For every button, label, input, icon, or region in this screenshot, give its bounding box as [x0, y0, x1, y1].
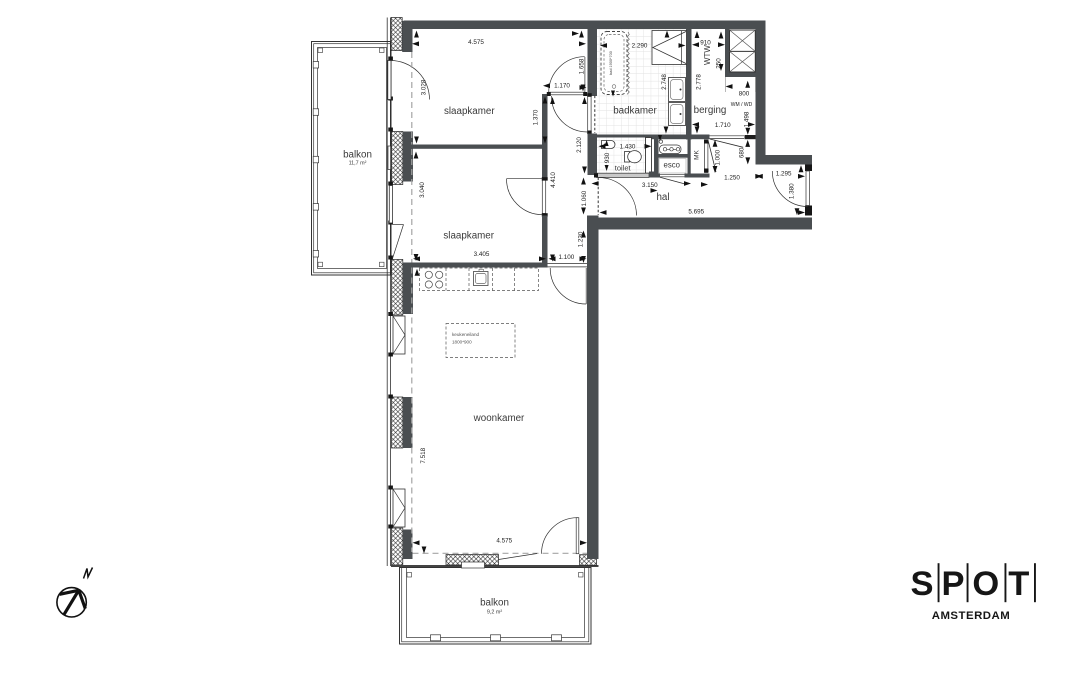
svg-text:hal: hal — [656, 192, 669, 203]
svg-text:WTW: WTW — [703, 45, 712, 65]
svg-text:berging: berging — [694, 105, 727, 116]
svg-text:5.695: 5.695 — [688, 209, 704, 216]
svg-text:9,2 m²: 9,2 m² — [487, 610, 502, 616]
svg-text:7.518: 7.518 — [420, 447, 427, 463]
svg-text:1.295: 1.295 — [776, 171, 792, 178]
svg-text:WM / WD: WM / WD — [731, 102, 753, 108]
svg-text:3.405: 3.405 — [474, 251, 490, 258]
svg-text:slaapkamer: slaapkamer — [443, 231, 494, 242]
svg-text:1800*900: 1800*900 — [452, 340, 472, 345]
svg-text:badkamer: badkamer — [613, 106, 657, 117]
svg-text:1.060: 1.060 — [581, 190, 588, 206]
svg-text:680: 680 — [739, 147, 746, 158]
svg-text:2.778: 2.778 — [696, 74, 703, 90]
svg-text:balkon: balkon — [343, 149, 372, 160]
svg-text:1.000: 1.000 — [714, 149, 721, 165]
svg-text:4.575: 4.575 — [496, 538, 512, 545]
svg-text:1.380: 1.380 — [789, 183, 796, 199]
svg-text:1.658: 1.658 — [579, 58, 586, 74]
svg-text:2.290: 2.290 — [632, 42, 648, 49]
svg-text:esco: esco — [664, 161, 681, 170]
svg-text:1.710: 1.710 — [715, 122, 731, 129]
svg-text:1.100: 1.100 — [559, 254, 575, 261]
svg-text:bad 1900*700: bad 1900*700 — [609, 51, 613, 75]
svg-text:1.250: 1.250 — [724, 174, 740, 181]
svg-text:3.028: 3.028 — [421, 79, 428, 95]
svg-text:3.150: 3.150 — [642, 182, 658, 189]
svg-text:balkon: balkon — [480, 597, 509, 608]
svg-text:P: P — [941, 565, 964, 603]
svg-text:toilet: toilet — [615, 163, 632, 172]
svg-text:930: 930 — [604, 152, 611, 163]
svg-text:1.370: 1.370 — [533, 109, 540, 125]
svg-text:4.575: 4.575 — [468, 39, 484, 46]
svg-text:910: 910 — [700, 40, 711, 47]
svg-text:slaapkamer: slaapkamer — [444, 106, 495, 117]
svg-text:2.120: 2.120 — [576, 137, 583, 153]
svg-text:2.748: 2.748 — [661, 74, 668, 90]
svg-text:3.040: 3.040 — [419, 182, 426, 198]
svg-text:MK: MK — [694, 149, 701, 159]
svg-text:1.430: 1.430 — [620, 144, 636, 151]
svg-text:woonkamer: woonkamer — [473, 413, 525, 424]
svg-text:AMSTERDAM: AMSTERDAM — [932, 610, 1011, 622]
svg-text:S: S — [910, 565, 933, 603]
svg-text:1.170: 1.170 — [554, 83, 570, 90]
svg-text:O: O — [972, 565, 999, 603]
svg-text:11,7 m²: 11,7 m² — [349, 161, 367, 167]
svg-text:800: 800 — [739, 90, 750, 97]
svg-text:keukeneiland: keukeneiland — [452, 332, 480, 337]
svg-text:T: T — [1008, 565, 1029, 603]
svg-text:4.410: 4.410 — [550, 172, 557, 188]
